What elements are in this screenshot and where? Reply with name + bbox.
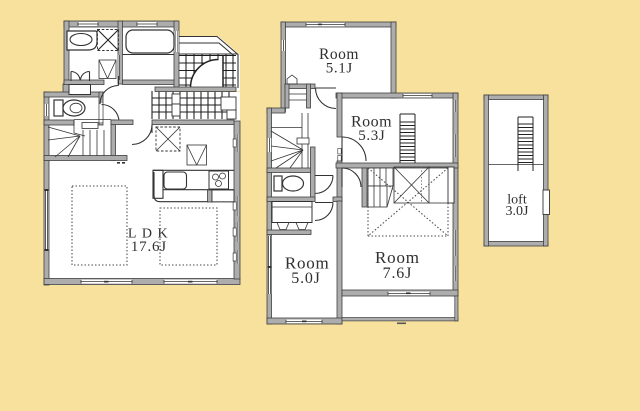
svg-text:5.0J: 5.0J [291, 270, 320, 287]
svg-text:5.1J: 5.1J [326, 61, 353, 77]
svg-text:3.0J: 3.0J [506, 204, 530, 219]
svg-text:5.3J: 5.3J [358, 128, 385, 144]
svg-text:7.6J: 7.6J [383, 265, 412, 282]
svg-text:17.6J: 17.6J [131, 239, 167, 255]
